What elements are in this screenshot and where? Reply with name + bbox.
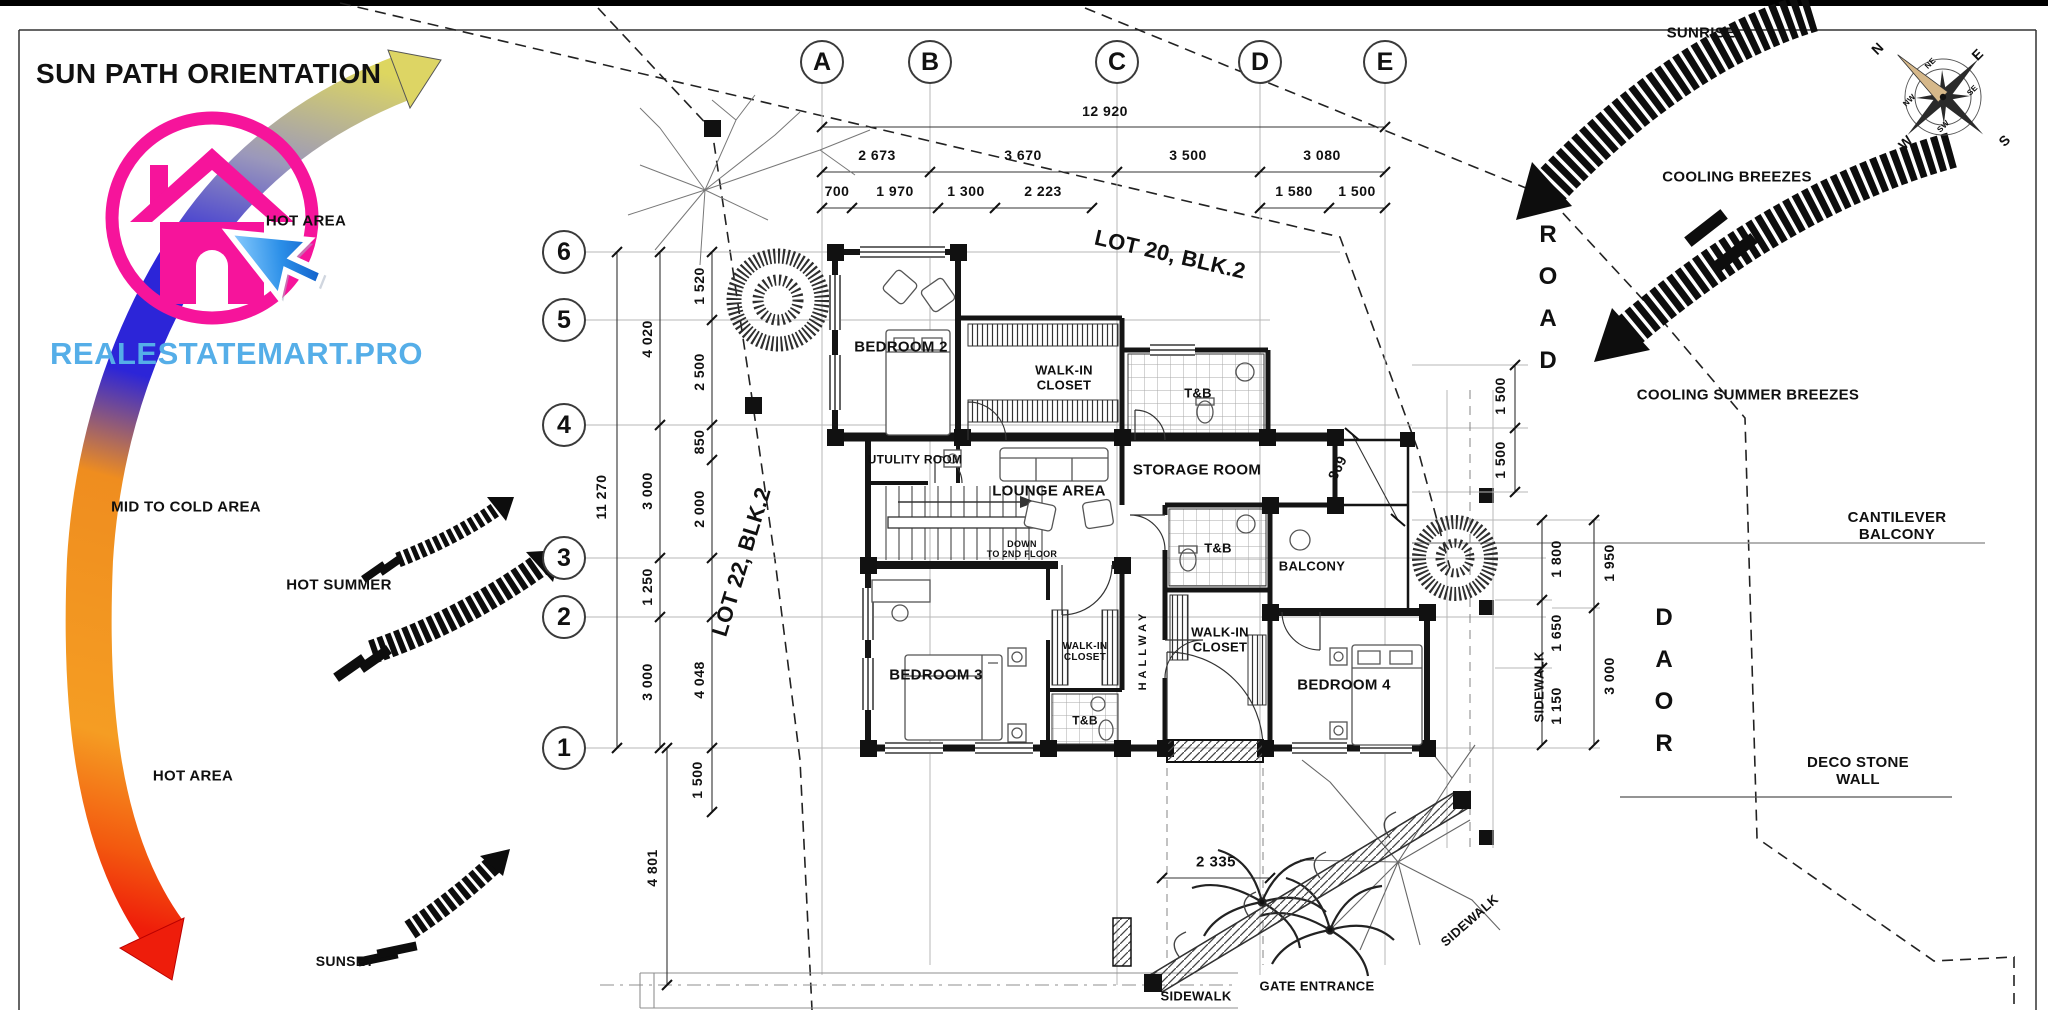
grid-column-bubble-D: D bbox=[1238, 40, 1282, 84]
grid-row-bubble-6: 6 bbox=[542, 230, 586, 274]
sidewalk-lines bbox=[600, 390, 1470, 1008]
watermark-logo-text: REALESTATEMART.PRO bbox=[50, 336, 423, 372]
sunset-arrow bbox=[358, 849, 510, 967]
cooling-breeze-arrow bbox=[1594, 150, 1952, 362]
wind-arrows bbox=[333, 12, 1952, 967]
grid-row-bubble-5: 5 bbox=[542, 298, 586, 342]
grid-row-bubble-4: 4 bbox=[542, 403, 586, 447]
sun-path-arc bbox=[89, 50, 441, 980]
floor-plan-sheet: SUN PATH ORIENTATION REALESTATEMART.PRO … bbox=[0, 0, 2048, 1010]
grid-column-bubble-C: C bbox=[1095, 40, 1139, 84]
stairs bbox=[886, 486, 1042, 560]
floor-plan-drawing bbox=[0, 0, 2048, 1010]
shrub-top-left bbox=[734, 256, 822, 344]
grid-column-bubble-B: B bbox=[908, 40, 952, 84]
grid-column-bubble-A: A bbox=[800, 40, 844, 84]
hot-summer-arrows bbox=[333, 497, 561, 682]
page-title: SUN PATH ORIENTATION bbox=[36, 58, 381, 90]
grid-row-bubble-1: 1 bbox=[542, 726, 586, 770]
grid-column-bubble-E: E bbox=[1363, 40, 1407, 84]
tree-branches-top bbox=[628, 95, 870, 265]
grid-row-bubble-2: 2 bbox=[542, 595, 586, 639]
entrance-threshold bbox=[1167, 740, 1263, 762]
grid-row-bubble-3: 3 bbox=[542, 536, 586, 580]
deco-stone-wall bbox=[1113, 791, 1471, 992]
sunrise-breeze-arrow bbox=[1516, 12, 1812, 220]
